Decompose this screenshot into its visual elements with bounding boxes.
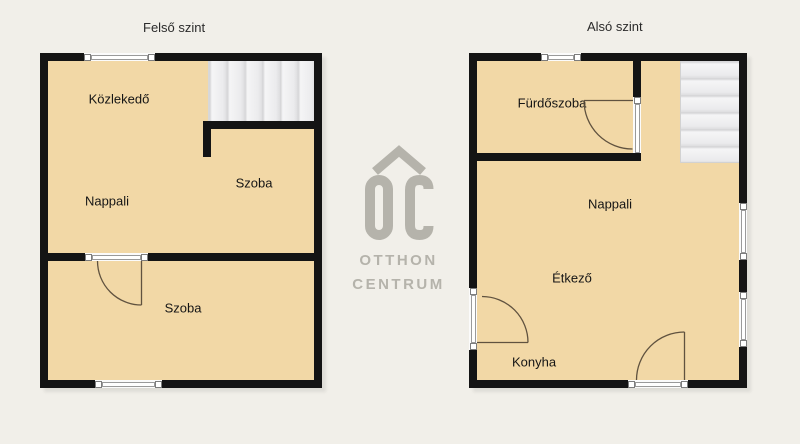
- door-threshold: [635, 382, 681, 387]
- door-threshold: [635, 104, 640, 153]
- room-label: Nappali: [85, 194, 129, 209]
- room-label: Konyha: [512, 355, 556, 370]
- window-glass: [741, 210, 746, 253]
- window-jamb: [740, 292, 747, 299]
- room-label: Fürdőszoba: [518, 96, 587, 111]
- logo-oc-monogram: [330, 140, 467, 245]
- interior-wall: [477, 153, 641, 161]
- door-opening: [628, 380, 688, 388]
- plan-title-lower: Alsó szint: [587, 19, 643, 34]
- window: [739, 203, 747, 260]
- otthon-centrum-logo: OTTHON CENTRUM: [330, 140, 467, 300]
- window: [541, 53, 581, 61]
- window-jamb: [155, 381, 162, 388]
- logo-word-otthon: OTTHON: [330, 252, 467, 270]
- window-jamb: [740, 203, 747, 210]
- window-jamb: [574, 54, 581, 61]
- window: [84, 53, 155, 61]
- plan-title-upper: Felső szint: [143, 20, 205, 35]
- staircase: [680, 61, 739, 163]
- window-glass: [548, 55, 574, 60]
- door-jamb: [470, 288, 477, 295]
- floor-plan-upper: Közlekedő Szoba Nappali Szoba: [40, 53, 322, 388]
- window-jamb: [740, 340, 747, 347]
- window-glass: [741, 299, 746, 340]
- interior-wall-stub: [203, 121, 211, 157]
- room-label: Nappali: [588, 197, 632, 212]
- door-threshold: [92, 255, 141, 260]
- room-label: Szoba: [165, 301, 202, 316]
- floor-plan-lower: Fürdőszoba Nappali Étkező Konyha: [469, 53, 747, 388]
- interior-wall: [203, 121, 314, 129]
- window-jamb: [84, 54, 91, 61]
- roof-chevron-icon: [375, 151, 423, 172]
- window-glass: [91, 55, 148, 60]
- door-jamb: [628, 381, 635, 388]
- window-jamb: [148, 54, 155, 61]
- door-jamb: [141, 254, 148, 261]
- door-jamb: [470, 343, 477, 350]
- window-jamb: [740, 253, 747, 260]
- window: [95, 380, 162, 388]
- interior-wall: [633, 61, 641, 97]
- room-label: Közlekedő: [89, 92, 150, 107]
- staircase: [208, 61, 314, 121]
- logo-word-centrum: CENTRUM: [330, 276, 467, 294]
- logo-letter-o: [370, 180, 388, 235]
- door-jamb: [634, 97, 641, 104]
- floor-plan-image: Felső szint Alsó szint Közlekedő: [0, 0, 800, 444]
- door-opening: [85, 253, 148, 261]
- window: [739, 292, 747, 347]
- door-jamb: [681, 381, 688, 388]
- window-jamb: [95, 381, 102, 388]
- room-label: Étkező: [552, 271, 592, 286]
- logo-letter-c: [410, 180, 429, 235]
- interior-wall: [40, 253, 322, 261]
- door-jamb: [85, 254, 92, 261]
- window-jamb: [541, 54, 548, 61]
- door-opening: [633, 97, 641, 160]
- window-glass: [102, 382, 155, 387]
- door-threshold: [471, 295, 476, 343]
- room-label: Szoba: [236, 176, 273, 191]
- door-opening: [469, 288, 477, 350]
